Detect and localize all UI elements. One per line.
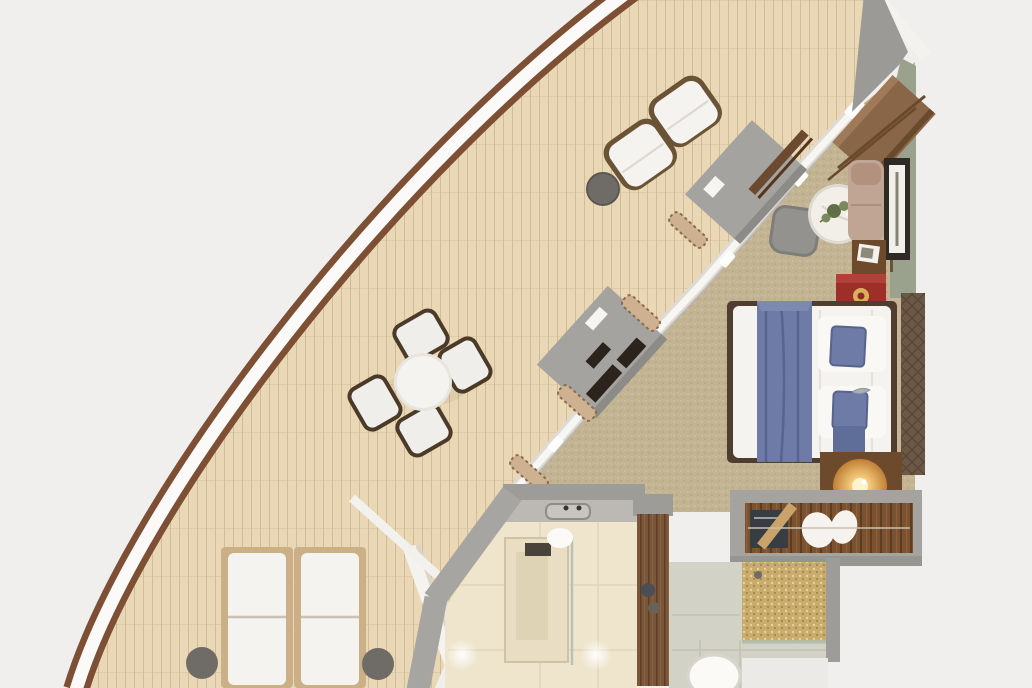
door-header-wall	[633, 494, 673, 516]
entry-threshold	[742, 658, 828, 688]
shower-head	[754, 571, 762, 579]
pillow	[832, 391, 867, 429]
photo-table	[852, 240, 886, 274]
corridor-right-wall	[826, 558, 840, 662]
lounger-side-table	[186, 647, 218, 679]
wardrobe	[730, 490, 922, 566]
chaise	[848, 160, 884, 242]
floor-light-reflection	[580, 639, 612, 671]
sink	[546, 504, 590, 519]
folded-throw	[833, 426, 865, 454]
door-handle	[641, 583, 655, 597]
vanity	[506, 500, 640, 522]
shower-control	[525, 543, 551, 556]
sun-lounger	[228, 553, 286, 685]
floor-plan-stage	[0, 0, 1032, 688]
pillow	[830, 326, 866, 367]
faucet	[564, 506, 569, 511]
wall-art	[884, 158, 910, 260]
dining-table	[397, 356, 449, 408]
headboard-panel	[901, 293, 925, 475]
faucet	[577, 506, 582, 511]
floor-plan-svg	[0, 0, 1032, 688]
corridor	[669, 558, 840, 688]
bathroom-top-wall	[503, 484, 645, 502]
bed-runner	[757, 301, 812, 462]
lounger-side-table	[362, 648, 394, 680]
sun-lounger	[301, 553, 359, 685]
toilet	[688, 655, 740, 688]
shower	[505, 528, 573, 665]
floor-light-reflection	[446, 639, 478, 671]
towel	[547, 528, 573, 548]
shower-niche	[516, 552, 548, 640]
door-handle	[648, 602, 660, 614]
bathroom-door	[637, 514, 669, 686]
